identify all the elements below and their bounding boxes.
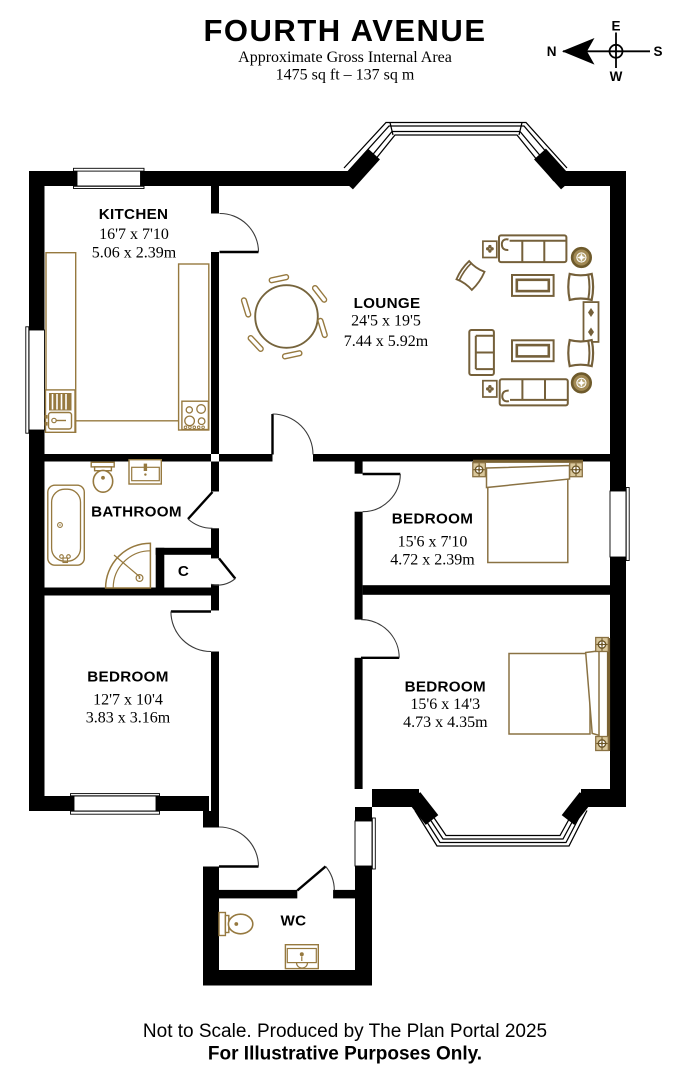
svg-text:4.72 x 2.39m: 4.72 x 2.39m (390, 551, 475, 568)
svg-text:WC: WC (281, 912, 307, 929)
svg-text:KITCHEN: KITCHEN (99, 206, 169, 223)
svg-text:BEDROOM: BEDROOM (405, 679, 486, 696)
svg-text:C: C (178, 563, 189, 580)
svg-text:15'6 x 14'3: 15'6 x 14'3 (410, 696, 480, 713)
svg-text:BATHROOM: BATHROOM (91, 504, 182, 521)
svg-text:15'6 x 7'10: 15'6 x 7'10 (398, 534, 468, 551)
svg-text:24'5 x 19'5: 24'5 x 19'5 (351, 313, 421, 330)
svg-text:1475 sq ft – 137 sq m: 1475 sq ft – 137 sq m (276, 67, 415, 84)
svg-text:Approximate Gross Internal Are: Approximate Gross Internal Area (238, 49, 452, 66)
svg-text:4.73 x 4.35m: 4.73 x 4.35m (403, 714, 488, 731)
svg-text:For Illustrative Purposes Only: For Illustrative Purposes Only. (208, 1044, 482, 1065)
svg-text:BEDROOM: BEDROOM (392, 511, 473, 528)
svg-text:16'7 x 7'10: 16'7 x 7'10 (99, 226, 169, 243)
svg-text:Not to Scale. Produced by The: Not to Scale. Produced by The Plan Porta… (143, 1021, 547, 1042)
svg-text:E: E (611, 19, 620, 34)
svg-text:3.83 x 3.16m: 3.83 x 3.16m (86, 710, 171, 727)
svg-text:LOUNGE: LOUNGE (354, 295, 421, 312)
svg-text:12'7 x 10'4: 12'7 x 10'4 (93, 692, 163, 709)
svg-text:BEDROOM: BEDROOM (87, 668, 168, 685)
svg-text:7.44 x 5.92m: 7.44 x 5.92m (344, 333, 429, 350)
svg-text:FOURTH AVENUE: FOURTH AVENUE (204, 13, 487, 48)
svg-text:5.06 x 2.39m: 5.06 x 2.39m (92, 245, 177, 262)
svg-text:W: W (610, 69, 623, 84)
svg-text:S: S (654, 44, 663, 59)
svg-text:N: N (547, 44, 557, 59)
